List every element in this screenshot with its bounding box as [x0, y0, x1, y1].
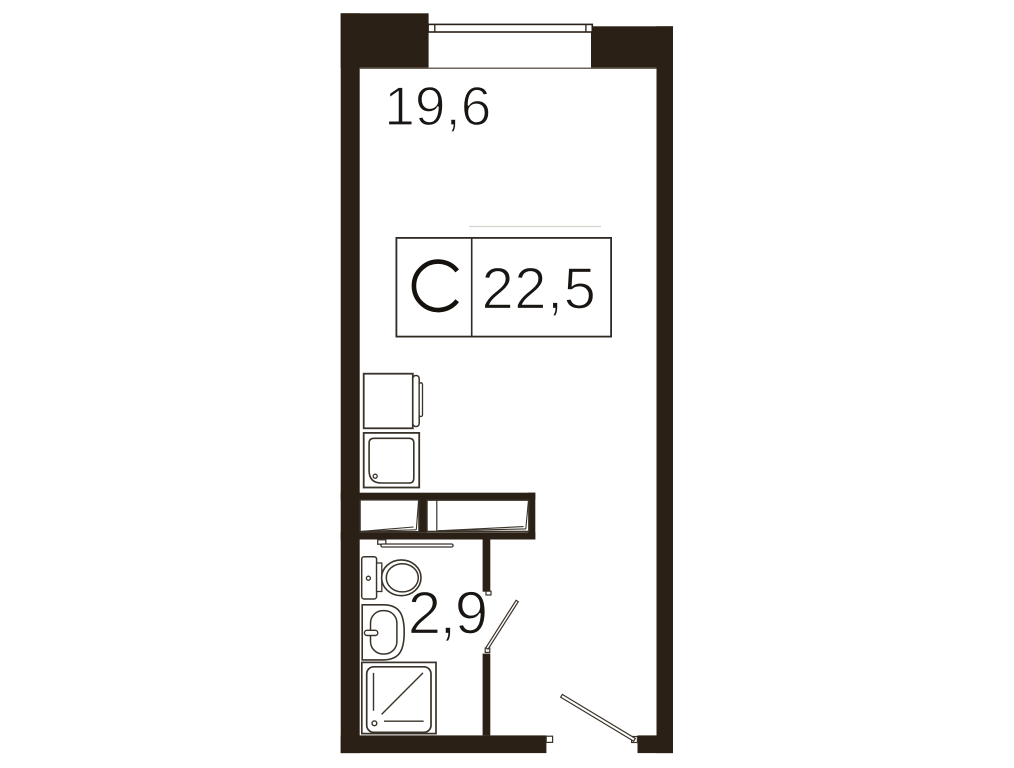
svg-text:2,9: 2,9 [408, 580, 487, 647]
svg-text:22,5: 22,5 [482, 257, 597, 322]
svg-text:19,6: 19,6 [384, 75, 491, 137]
